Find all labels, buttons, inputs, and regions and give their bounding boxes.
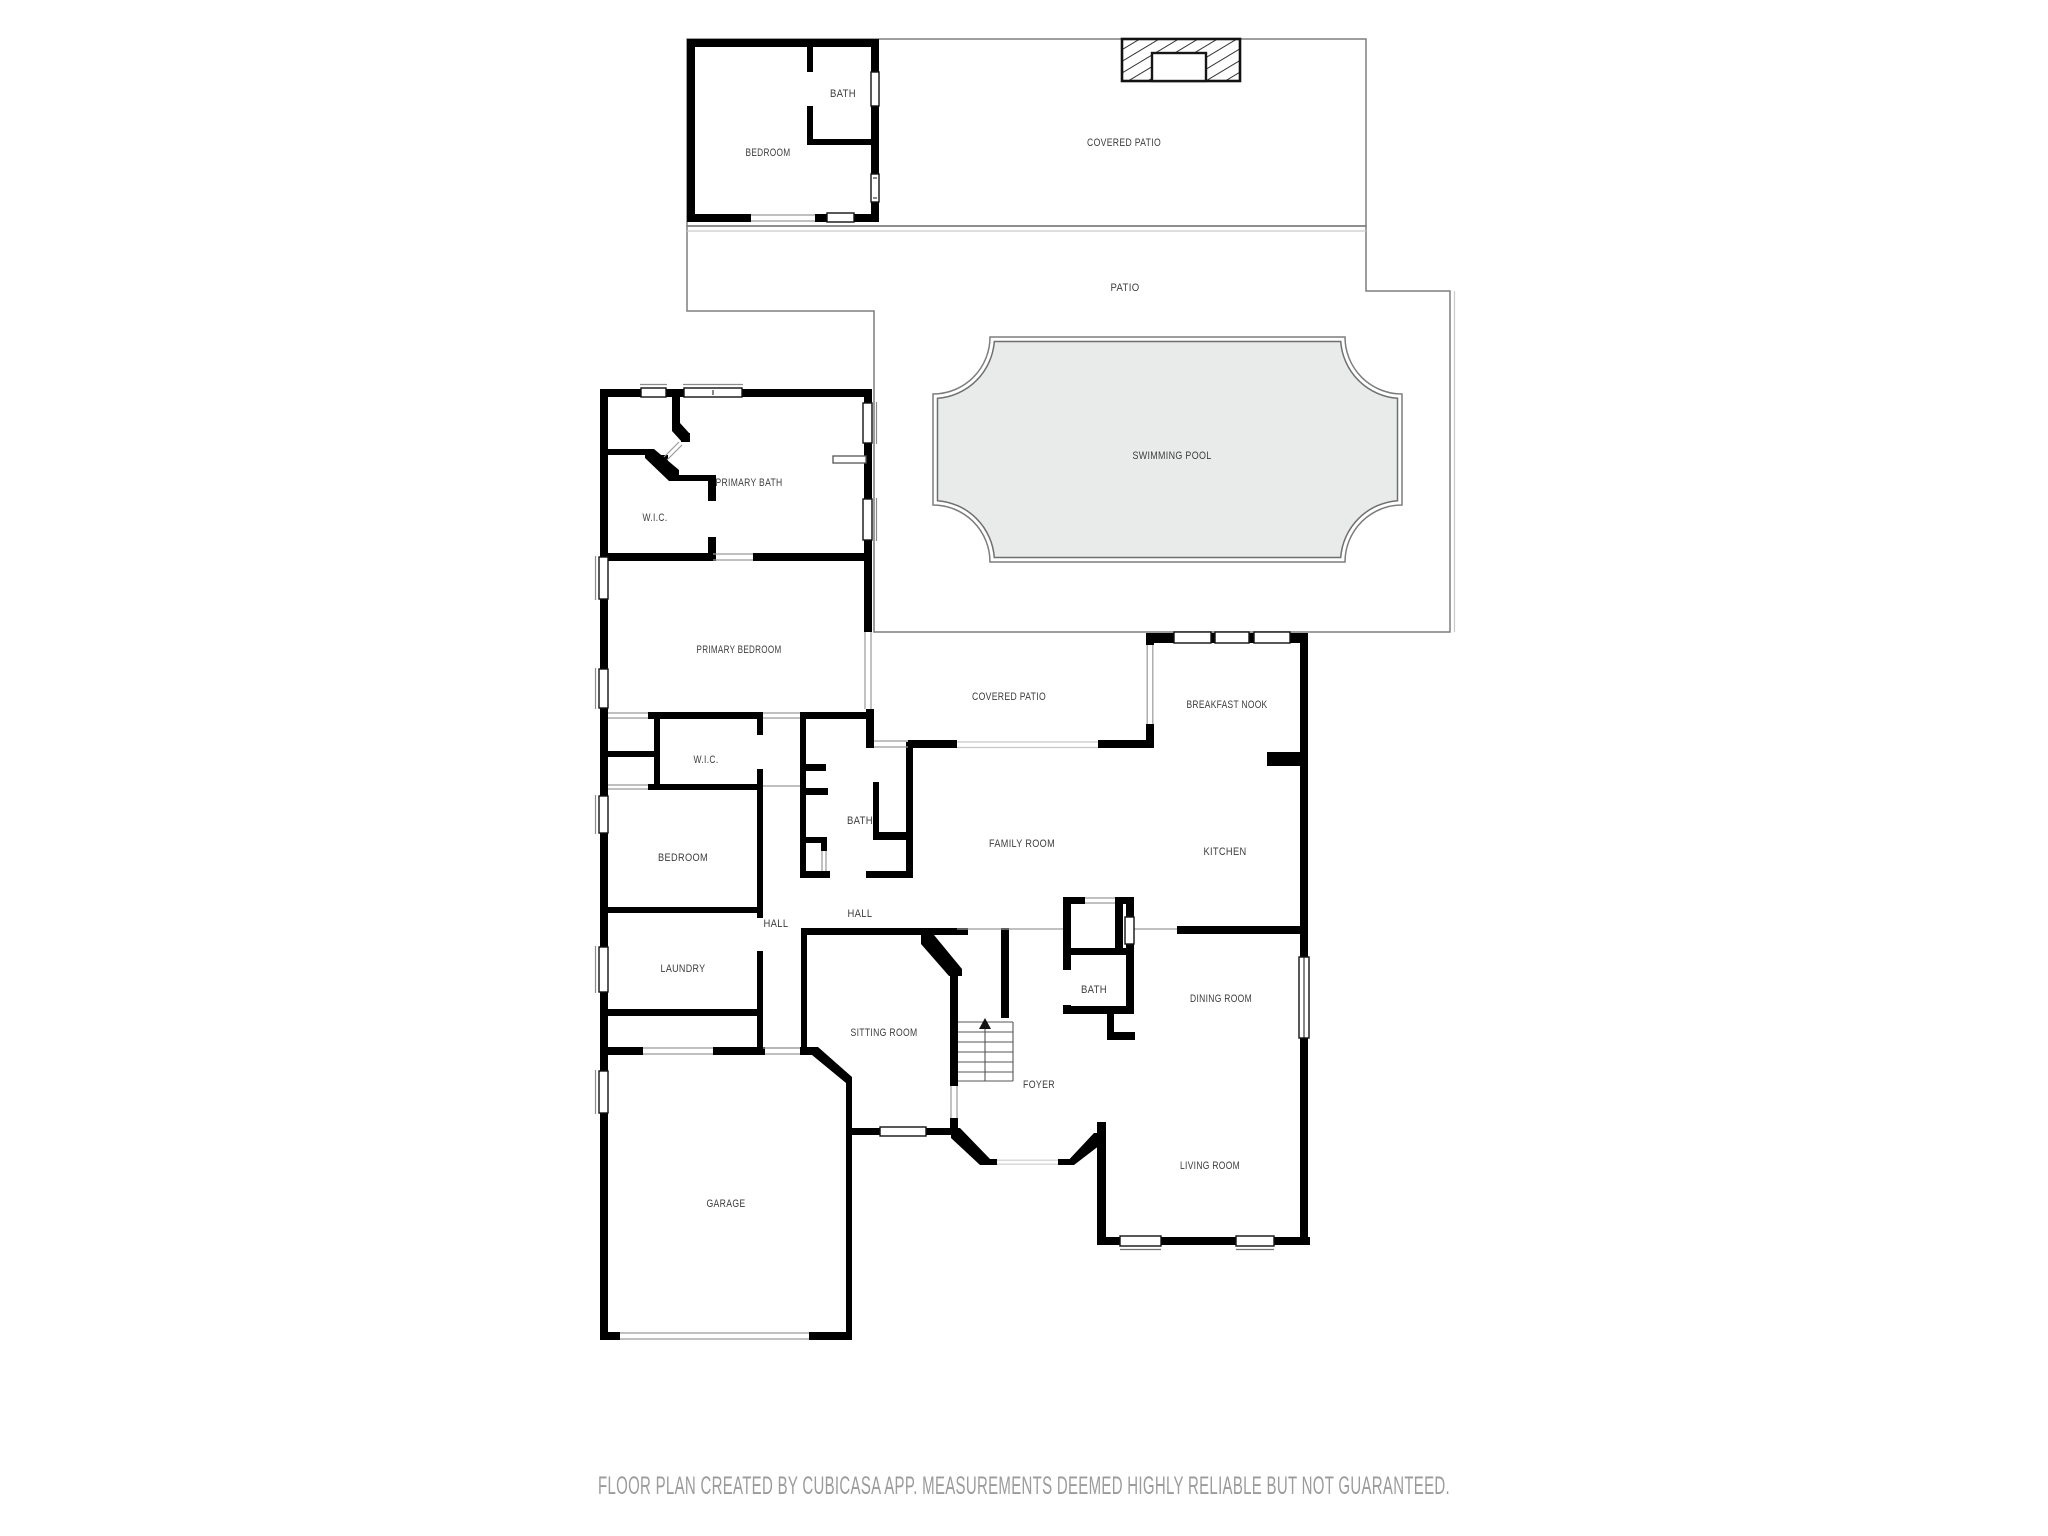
- svg-text:PATIO: PATIO: [1111, 282, 1140, 294]
- svg-text:LIVING ROOM: LIVING ROOM: [1180, 1160, 1240, 1172]
- svg-text:BATH: BATH: [847, 815, 873, 827]
- svg-text:HALL: HALL: [764, 918, 789, 930]
- svg-text:GARAGE: GARAGE: [707, 1198, 746, 1210]
- svg-text:COVERED PATIO: COVERED PATIO: [972, 691, 1046, 703]
- svg-text:PRIMARY BEDROOM: PRIMARY BEDROOM: [697, 644, 782, 656]
- svg-text:SITTING ROOM: SITTING ROOM: [851, 1027, 918, 1039]
- svg-text:W.I.C.: W.I.C.: [694, 754, 719, 766]
- svg-text:LAUNDRY: LAUNDRY: [661, 963, 706, 975]
- svg-text:BEDROOM: BEDROOM: [658, 852, 708, 864]
- svg-text:COVERED PATIO: COVERED PATIO: [1087, 137, 1161, 149]
- svg-text:BATH: BATH: [1081, 984, 1107, 996]
- svg-text:W.I.C.: W.I.C.: [643, 512, 668, 524]
- svg-text:DINING ROOM: DINING ROOM: [1190, 993, 1252, 1005]
- svg-text:FAMILY ROOM: FAMILY ROOM: [989, 838, 1055, 850]
- svg-text:BATH: BATH: [830, 88, 856, 100]
- svg-text:KITCHEN: KITCHEN: [1204, 846, 1247, 858]
- svg-text:FLOOR PLAN CREATED BY CUBICASA: FLOOR PLAN CREATED BY CUBICASA APP. MEAS…: [598, 1472, 1450, 1500]
- svg-text:PRIMARY BATH: PRIMARY BATH: [716, 477, 783, 489]
- svg-text:BREAKFAST NOOK: BREAKFAST NOOK: [1187, 699, 1268, 711]
- svg-text:SWIMMING POOL: SWIMMING POOL: [1133, 450, 1212, 462]
- svg-text:BEDROOM: BEDROOM: [746, 147, 791, 159]
- svg-text:FOYER: FOYER: [1023, 1079, 1055, 1091]
- svg-text:HALL: HALL: [848, 908, 873, 920]
